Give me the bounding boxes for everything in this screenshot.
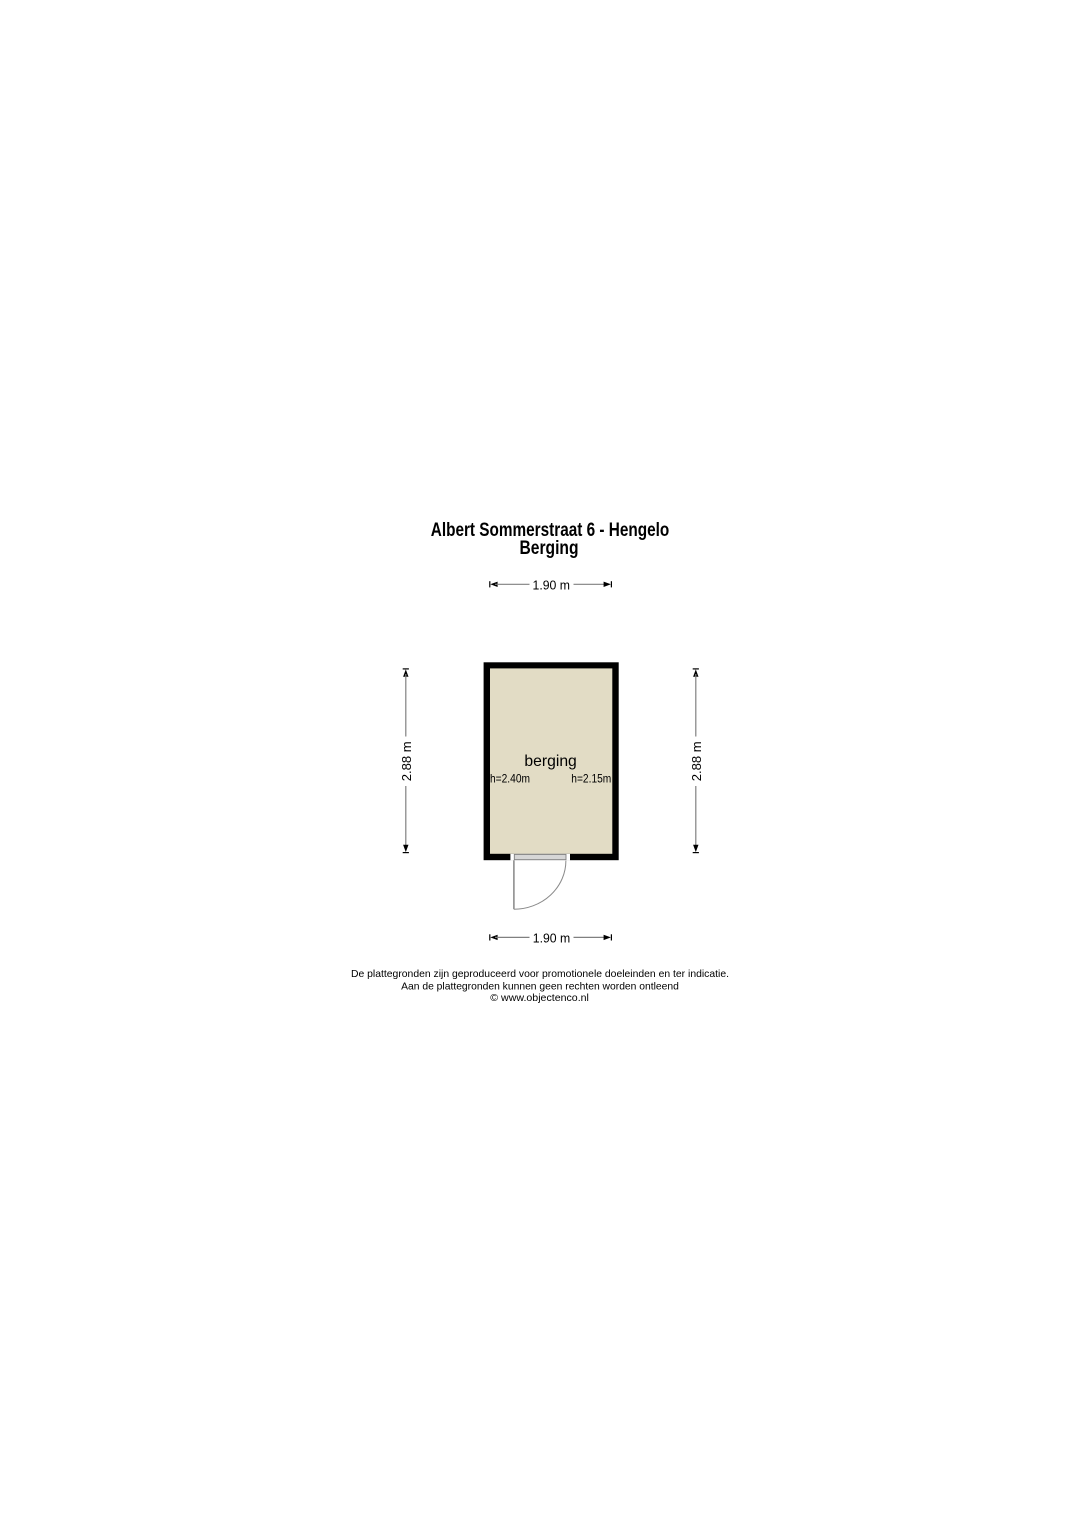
svg-text:De plattegronden zijn geproduc: De plattegronden zijn geproduceerd voor … xyxy=(351,968,729,980)
svg-text:1.90 m: 1.90 m xyxy=(533,930,571,945)
svg-text:Aan de plattegronden kunnen ge: Aan de plattegronden kunnen geen rechten… xyxy=(401,980,679,992)
svg-text:Berging: Berging xyxy=(520,538,579,559)
svg-text:h=2.40m: h=2.40m xyxy=(490,771,530,785)
svg-text:© www.objectenco.nl: © www.objectenco.nl xyxy=(490,992,589,1004)
svg-text:h=2.15m: h=2.15m xyxy=(571,771,611,785)
svg-text:1.90 m: 1.90 m xyxy=(533,577,571,592)
svg-text:2.88 m: 2.88 m xyxy=(689,741,704,781)
svg-text:berging: berging xyxy=(524,753,576,770)
svg-text:2.88 m: 2.88 m xyxy=(399,741,414,781)
